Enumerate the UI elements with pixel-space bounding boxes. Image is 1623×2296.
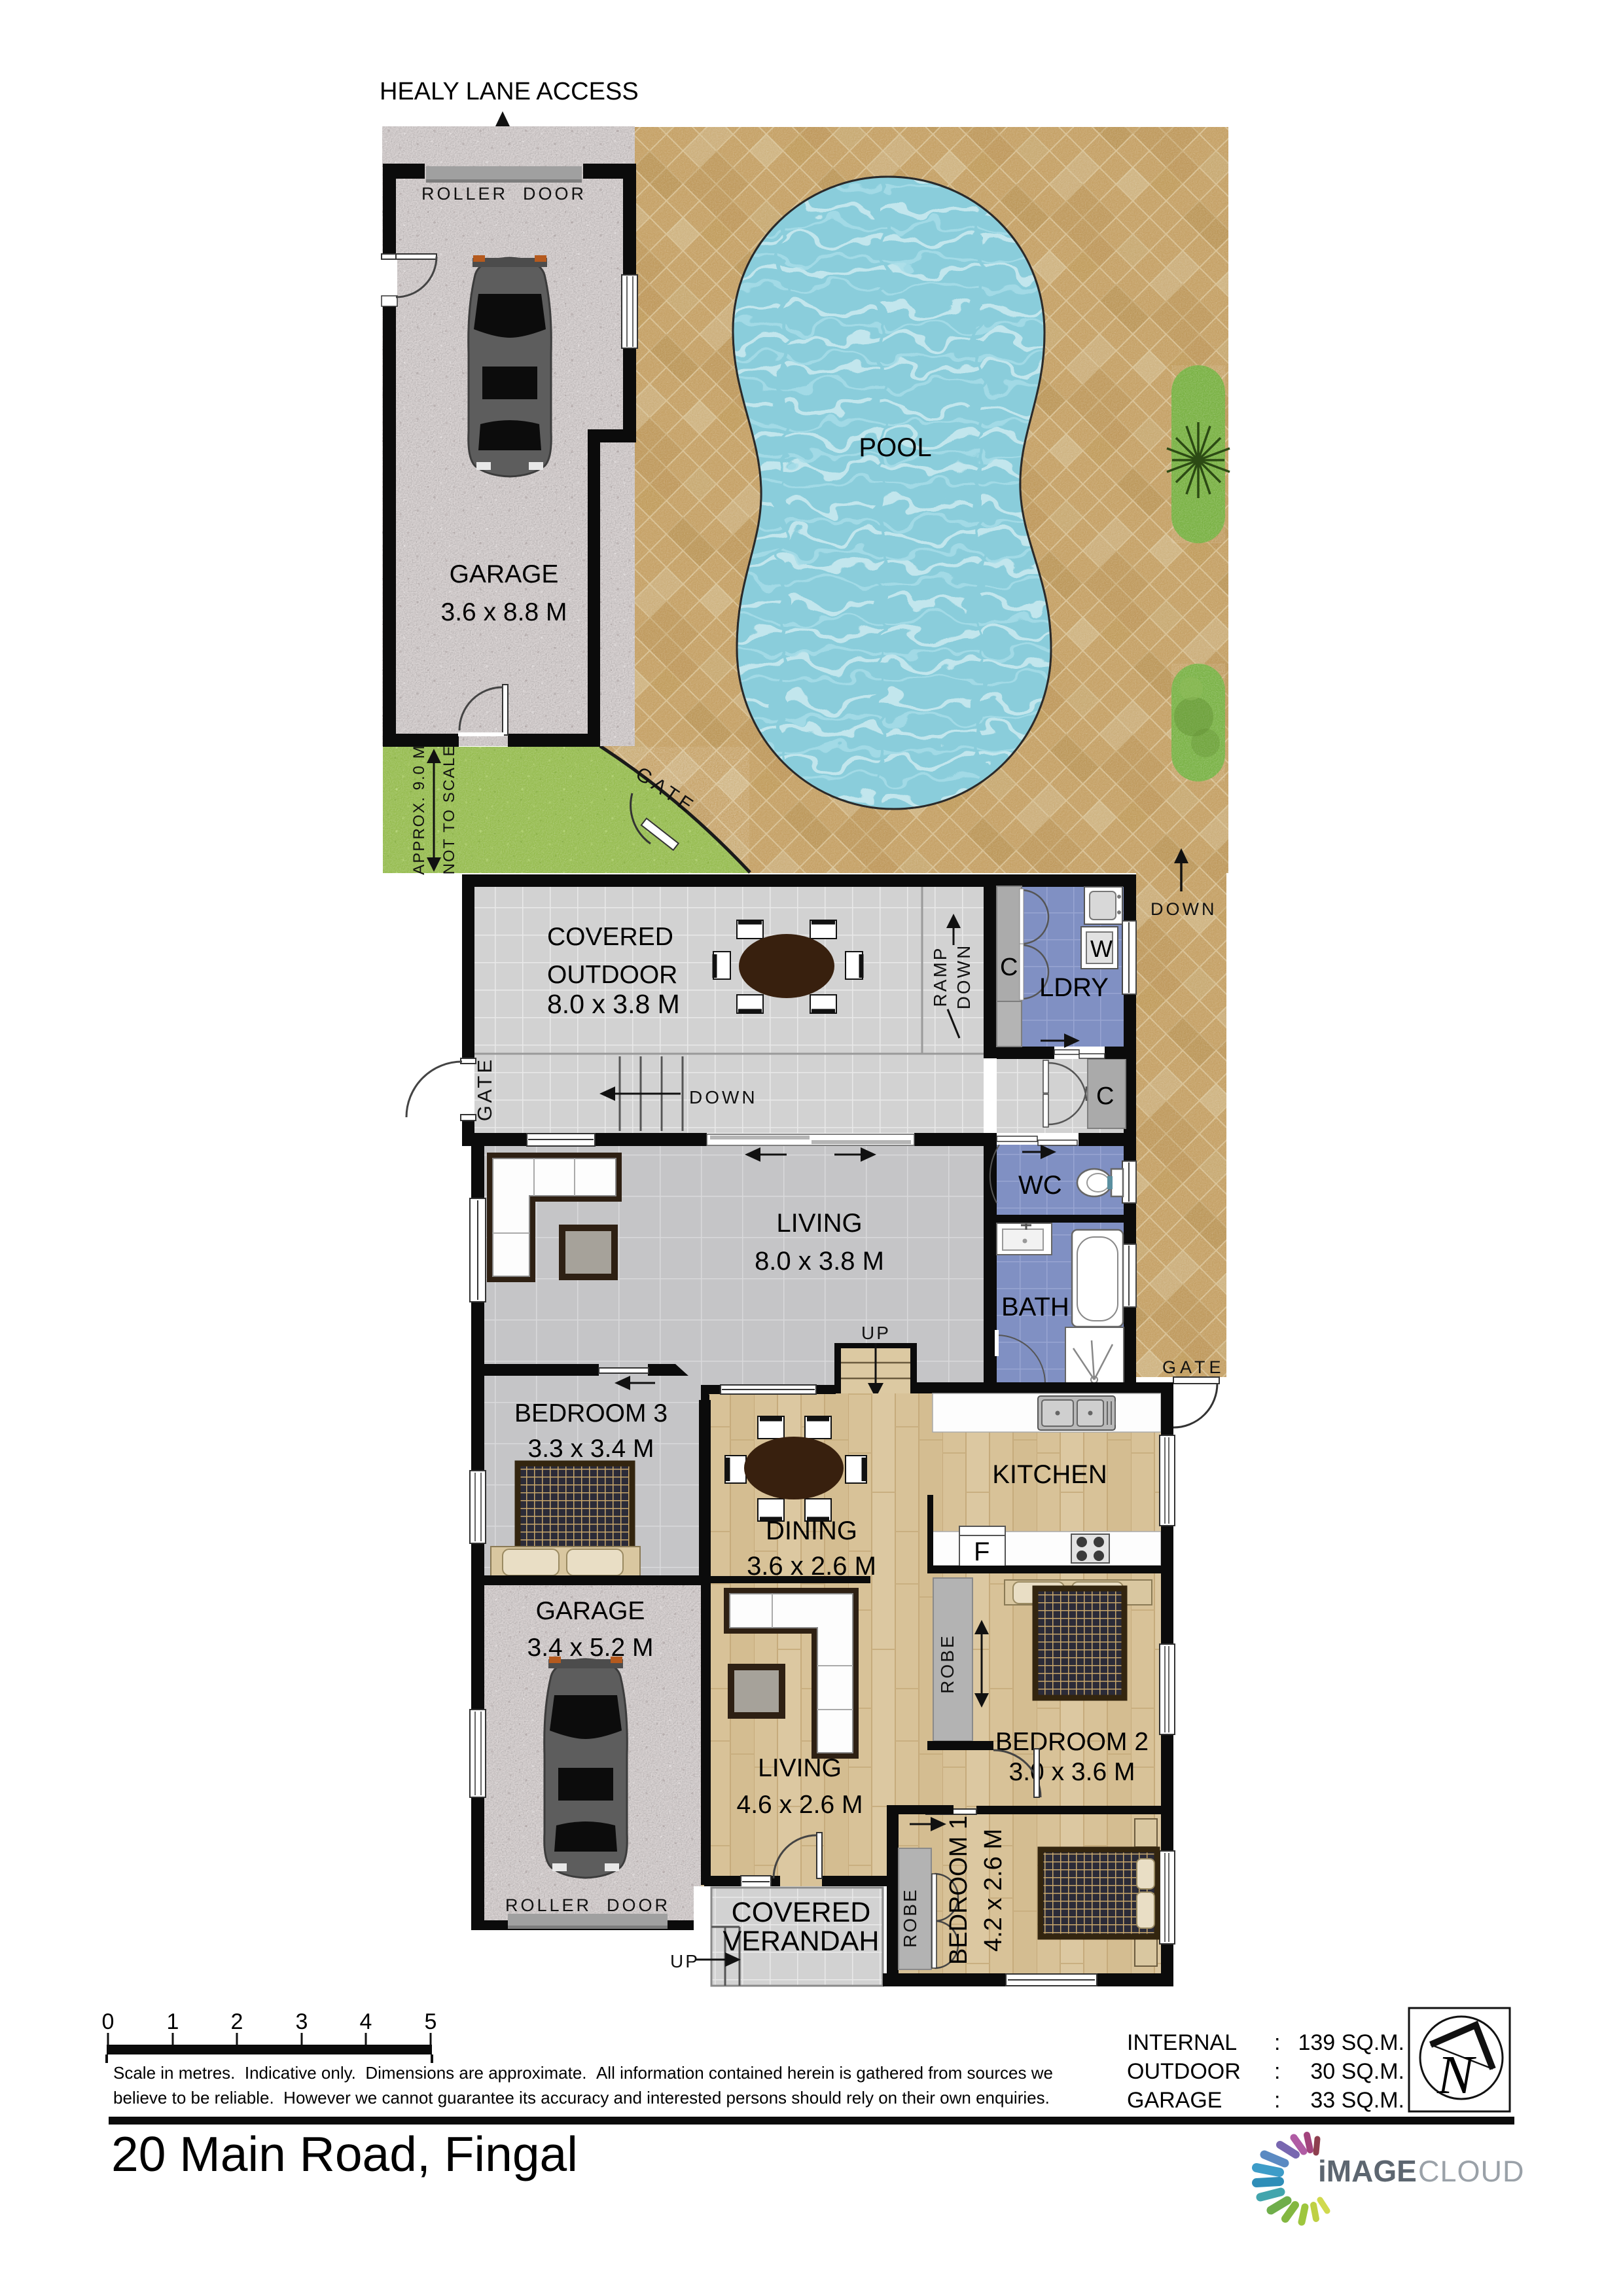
- svg-text:ROLLER DOOR: ROLLER DOOR: [421, 184, 586, 204]
- svg-text:4.2 x 2.6 M: 4.2 x 2.6 M: [980, 1829, 1007, 1952]
- svg-text:ROBE: ROBE: [900, 1888, 920, 1947]
- svg-text:KITCHEN: KITCHEN: [992, 1460, 1107, 1489]
- svg-text:OUTDOOR: OUTDOOR: [1127, 2059, 1241, 2084]
- svg-text:POOL: POOL: [859, 433, 931, 462]
- svg-text:ROBE: ROBE: [937, 1634, 957, 1693]
- svg-text:20 Main Road, Fingal: 20 Main Road, Fingal: [111, 2126, 578, 2181]
- svg-text::: :: [1274, 2030, 1280, 2055]
- svg-text:3.4 x 5.2 M: 3.4 x 5.2 M: [527, 1634, 654, 1662]
- svg-text:VERANDAH: VERANDAH: [723, 1926, 880, 1957]
- svg-text:2: 2: [231, 2009, 243, 2034]
- svg-text:WC: WC: [1018, 1171, 1062, 1200]
- svg-text:COVERED: COVERED: [732, 1897, 871, 1928]
- svg-text:5: 5: [425, 2009, 437, 2034]
- svg-text:iMAGE: iMAGE: [1318, 2154, 1417, 2188]
- svg-text:3.6 x 2.6 M: 3.6 x 2.6 M: [747, 1552, 876, 1581]
- svg-text:C: C: [1000, 954, 1018, 981]
- svg-text:RAMP: RAMP: [930, 946, 950, 1007]
- svg-text:INTERNAL: INTERNAL: [1127, 2030, 1237, 2055]
- svg-text:LDRY: LDRY: [1039, 973, 1109, 1002]
- svg-text::: :: [1274, 2059, 1280, 2084]
- svg-text:DINING: DINING: [766, 1516, 857, 1545]
- svg-text:3.3 x 3.4 M: 3.3 x 3.4 M: [528, 1435, 654, 1463]
- svg-text:DOWN: DOWN: [954, 944, 974, 1010]
- svg-text:F: F: [974, 1537, 990, 1566]
- svg-text:33 SQ.M.: 33 SQ.M.: [1310, 2088, 1404, 2113]
- svg-text:GARAGE: GARAGE: [536, 1597, 645, 1625]
- svg-text:8.0 x 3.8 M: 8.0 x 3.8 M: [755, 1247, 884, 1276]
- svg-text:3: 3: [296, 2009, 308, 2034]
- svg-text:BEDROOM 2: BEDROOM 2: [995, 1728, 1149, 1756]
- svg-text:UP: UP: [670, 1951, 700, 1971]
- svg-text:W: W: [1090, 935, 1113, 962]
- svg-text:BEDROOM 3: BEDROOM 3: [514, 1399, 668, 1427]
- svg-text:4: 4: [360, 2009, 372, 2034]
- svg-text::: :: [1274, 2088, 1280, 2113]
- svg-text:APPROX. 9.0 M: APPROX. 9.0 M: [410, 744, 428, 874]
- svg-text:0: 0: [102, 2009, 115, 2034]
- svg-text:OUTDOOR: OUTDOOR: [547, 961, 677, 989]
- svg-text:GARAGE: GARAGE: [450, 560, 559, 588]
- svg-text:Scale in metres. Indicative o: Scale in metres. Indicative only. Dimens…: [113, 2063, 1053, 2083]
- svg-text:HEALY LANE ACCESS: HEALY LANE ACCESS: [380, 78, 639, 105]
- svg-text:8.0 x 3.8 M: 8.0 x 3.8 M: [547, 989, 680, 1019]
- svg-text:139 SQ.M.: 139 SQ.M.: [1298, 2030, 1404, 2055]
- svg-text:UP: UP: [861, 1323, 891, 1343]
- svg-text:N: N: [1436, 2045, 1476, 2106]
- svg-text:BATH: BATH: [1001, 1293, 1069, 1321]
- svg-text:BEDROOM 1: BEDROOM 1: [945, 1816, 972, 1965]
- svg-text:believe to be reliable. Howev: believe to be reliable. However we canno…: [113, 2088, 1050, 2108]
- svg-text:DOWN: DOWN: [689, 1087, 758, 1107]
- svg-text:GATE: GATE: [1162, 1357, 1225, 1377]
- svg-text:CLOUD: CLOUD: [1418, 2155, 1525, 2188]
- svg-text:LIVING: LIVING: [758, 1754, 842, 1782]
- svg-text:ROLLER DOOR: ROLLER DOOR: [505, 1895, 670, 1915]
- svg-text:30 SQ.M.: 30 SQ.M.: [1310, 2059, 1404, 2084]
- svg-text:3.0 x 3.6 M: 3.0 x 3.6 M: [1009, 1758, 1135, 1786]
- svg-text:LIVING: LIVING: [776, 1209, 862, 1238]
- svg-text:C: C: [1096, 1083, 1114, 1110]
- svg-text:DOWN: DOWN: [1150, 899, 1217, 919]
- svg-text:NOT TO SCALE: NOT TO SCALE: [440, 745, 458, 875]
- svg-text:GARAGE: GARAGE: [1127, 2088, 1222, 2113]
- svg-text:GATE: GATE: [473, 1057, 496, 1121]
- svg-text:4.6 x 2.6 M: 4.6 x 2.6 M: [737, 1791, 863, 1819]
- svg-text:1: 1: [167, 2009, 179, 2034]
- svg-text:3.6 x 8.8 M: 3.6 x 8.8 M: [441, 598, 567, 626]
- svg-text:COVERED: COVERED: [547, 923, 673, 951]
